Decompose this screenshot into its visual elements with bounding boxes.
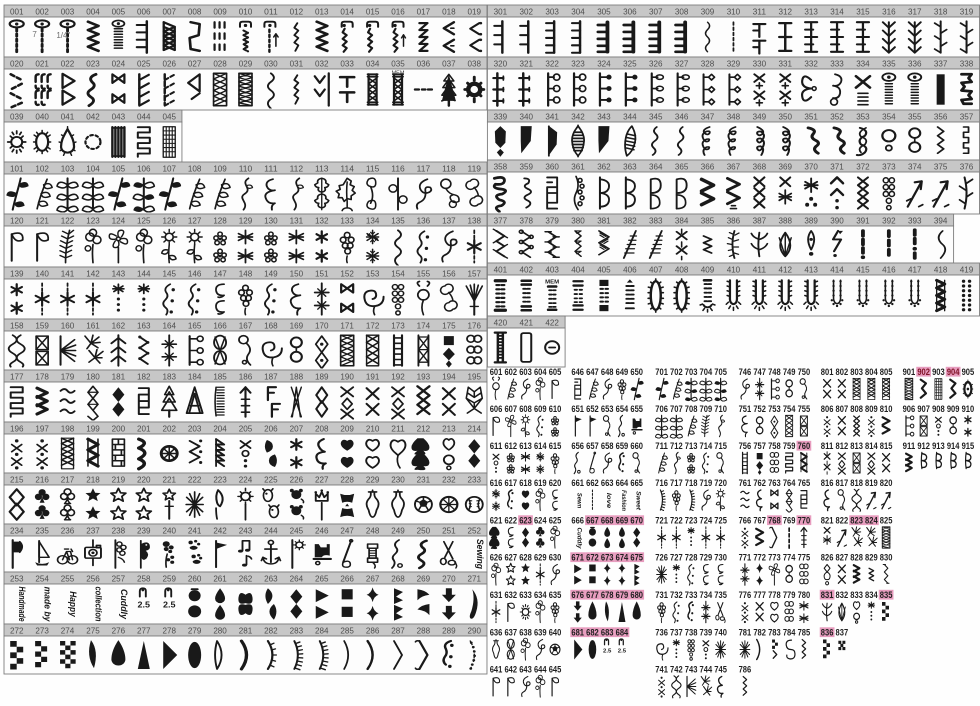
svg-text:256: 256 [86, 573, 100, 583]
svg-text:829: 829 [865, 553, 878, 563]
svg-text:038: 038 [468, 58, 482, 68]
svg-text:302: 302 [520, 6, 534, 16]
svg-text:366: 366 [701, 161, 715, 171]
svg-text:141: 141 [61, 268, 75, 278]
svg-text:027: 027 [188, 58, 202, 68]
svg-text:154: 154 [391, 268, 405, 278]
svg-text:773: 773 [768, 553, 781, 563]
svg-text:828: 828 [850, 553, 863, 563]
svg-text:019: 019 [468, 6, 482, 16]
svg-text:Sewn: Sewn [576, 493, 582, 509]
svg-text:420: 420 [494, 317, 508, 327]
svg-text:313: 313 [804, 6, 818, 16]
svg-text:741: 741 [655, 665, 668, 675]
svg-text:388: 388 [779, 215, 793, 225]
svg-text:755: 755 [798, 404, 811, 414]
svg-text:Sweet: Sweet [635, 491, 641, 511]
svg-text:231: 231 [417, 474, 431, 484]
svg-text:820: 820 [880, 478, 893, 488]
svg-text:031: 031 [290, 58, 304, 68]
svg-text:402: 402 [520, 264, 534, 274]
svg-text:724: 724 [700, 516, 713, 526]
svg-text:255: 255 [61, 573, 75, 583]
svg-text:Fashion: Fashion [620, 490, 626, 511]
svg-text:Handmade: Handmade [17, 587, 27, 622]
svg-text:328: 328 [701, 58, 715, 68]
svg-text:770: 770 [798, 516, 811, 526]
svg-text:020: 020 [10, 58, 24, 68]
svg-text:382: 382 [623, 215, 637, 225]
svg-text:712: 712 [670, 441, 683, 451]
svg-text:779: 779 [783, 590, 796, 600]
svg-text:614: 614 [534, 441, 547, 451]
svg-text:011: 011 [264, 6, 278, 16]
svg-text:222: 222 [188, 474, 202, 484]
svg-text:661: 661 [571, 478, 584, 488]
svg-text:043: 043 [112, 111, 126, 121]
svg-text:282: 282 [264, 625, 278, 635]
svg-text:212: 212 [417, 423, 431, 433]
svg-text:214: 214 [468, 423, 482, 433]
svg-text:224: 224 [239, 474, 253, 484]
svg-text:319: 319 [960, 6, 974, 16]
svg-text:266: 266 [340, 573, 354, 583]
svg-text:713: 713 [685, 441, 698, 451]
svg-text:128: 128 [213, 215, 227, 225]
svg-text:MEM: MEM [392, 71, 405, 77]
svg-text:168: 168 [264, 320, 278, 330]
svg-text:914: 914 [947, 441, 960, 451]
svg-text:219: 219 [112, 474, 126, 484]
svg-text:905: 905 [962, 367, 975, 377]
svg-text:129: 129 [239, 215, 253, 225]
svg-text:830: 830 [880, 553, 893, 563]
svg-text:678: 678 [601, 590, 614, 600]
svg-text:731: 731 [655, 590, 668, 600]
svg-text:607: 607 [504, 404, 517, 414]
svg-text:384: 384 [675, 215, 689, 225]
svg-text:822: 822 [836, 516, 849, 526]
svg-text:169: 169 [290, 320, 304, 330]
svg-text:622: 622 [504, 516, 517, 526]
svg-text:240: 240 [162, 525, 176, 535]
svg-text:114: 114 [340, 163, 354, 173]
svg-text:679: 679 [616, 590, 629, 600]
svg-text:418: 418 [934, 264, 948, 274]
svg-text:684: 684 [616, 628, 629, 638]
svg-text:118: 118 [442, 163, 456, 173]
svg-text:810: 810 [880, 404, 893, 414]
svg-text:727: 727 [670, 553, 683, 563]
svg-text:189: 189 [315, 371, 329, 381]
svg-text:378: 378 [520, 215, 534, 225]
svg-text:274: 274 [61, 625, 75, 635]
svg-text:147: 147 [213, 268, 227, 278]
svg-text:175: 175 [442, 320, 456, 330]
svg-text:125: 125 [137, 215, 151, 225]
svg-text:247: 247 [340, 525, 354, 535]
svg-text:677: 677 [586, 590, 599, 600]
svg-text:827: 827 [836, 553, 849, 563]
svg-text:185: 185 [213, 371, 227, 381]
svg-text:655: 655 [630, 404, 643, 414]
svg-text:324: 324 [597, 58, 611, 68]
svg-text:673: 673 [601, 553, 614, 563]
svg-text:772: 772 [753, 553, 766, 563]
svg-text:651: 651 [571, 404, 584, 414]
svg-text:391: 391 [856, 215, 870, 225]
svg-text:279: 279 [188, 625, 202, 635]
svg-text:824: 824 [865, 516, 878, 526]
svg-text:374: 374 [908, 161, 922, 171]
svg-text:227: 227 [315, 474, 329, 484]
svg-text:140: 140 [35, 268, 49, 278]
svg-text:379: 379 [545, 215, 559, 225]
svg-text:193: 193 [417, 371, 431, 381]
svg-text:235: 235 [35, 525, 49, 535]
svg-text:805: 805 [880, 367, 893, 377]
svg-text:393: 393 [908, 215, 922, 225]
svg-text:619: 619 [534, 478, 547, 488]
svg-text:199: 199 [86, 423, 100, 433]
svg-text:7: 7 [32, 30, 37, 39]
svg-text:341: 341 [545, 111, 559, 121]
svg-text:142: 142 [86, 268, 100, 278]
svg-text:740: 740 [714, 628, 727, 638]
svg-text:766: 766 [739, 516, 752, 526]
svg-text:910: 910 [962, 404, 975, 414]
svg-text:802: 802 [836, 367, 849, 377]
svg-text:350: 350 [779, 111, 793, 121]
svg-text:422: 422 [545, 317, 559, 327]
svg-text:618: 618 [519, 478, 532, 488]
svg-text:120: 120 [10, 215, 24, 225]
svg-text:410: 410 [727, 264, 741, 274]
svg-text:769: 769 [783, 516, 796, 526]
svg-text:301: 301 [494, 6, 508, 16]
svg-text:728: 728 [685, 553, 698, 563]
svg-text:325: 325 [623, 58, 637, 68]
svg-text:035: 035 [391, 58, 405, 68]
svg-text:764: 764 [783, 478, 796, 488]
svg-text:705: 705 [714, 367, 727, 377]
svg-text:024: 024 [112, 58, 126, 68]
svg-text:037: 037 [442, 58, 456, 68]
svg-text:287: 287 [391, 625, 405, 635]
svg-text:113: 113 [315, 163, 329, 173]
svg-text:403: 403 [545, 264, 559, 274]
svg-text:421: 421 [520, 317, 534, 327]
svg-text:708: 708 [685, 404, 698, 414]
svg-text:195: 195 [468, 371, 482, 381]
svg-text:777: 777 [753, 590, 766, 600]
svg-text:318: 318 [934, 6, 948, 16]
svg-text:604: 604 [534, 367, 547, 377]
svg-text:654: 654 [616, 404, 629, 414]
svg-text:334: 334 [856, 58, 870, 68]
svg-text:809: 809 [865, 404, 878, 414]
svg-text:150: 150 [290, 268, 304, 278]
svg-text:358: 358 [494, 161, 508, 171]
svg-text:806: 806 [821, 404, 834, 414]
svg-text:716: 716 [655, 478, 668, 488]
svg-text:204: 204 [213, 423, 227, 433]
svg-text:Cuddly: Cuddly [576, 528, 582, 550]
svg-text:207: 207 [290, 423, 304, 433]
svg-text:718: 718 [685, 478, 698, 488]
svg-text:308: 308 [675, 6, 689, 16]
svg-text:717: 717 [670, 478, 683, 488]
svg-text:633: 633 [519, 590, 532, 600]
svg-text:205: 205 [239, 423, 253, 433]
svg-text:152: 152 [340, 268, 354, 278]
svg-text:314: 314 [830, 6, 844, 16]
svg-text:179: 179 [61, 371, 75, 381]
svg-text:184: 184 [188, 371, 202, 381]
svg-text:025: 025 [137, 58, 151, 68]
svg-text:768: 768 [768, 516, 781, 526]
svg-text:813: 813 [850, 441, 863, 451]
svg-text:197: 197 [35, 423, 49, 433]
svg-text:258: 258 [137, 573, 151, 583]
svg-text:608: 608 [519, 404, 532, 414]
svg-text:416: 416 [882, 264, 896, 274]
svg-text:102: 102 [35, 163, 49, 173]
svg-text:161: 161 [86, 320, 100, 330]
svg-text:620: 620 [549, 478, 562, 488]
svg-text:013: 013 [315, 6, 329, 16]
svg-text:659: 659 [616, 441, 629, 451]
svg-text:105: 105 [112, 163, 126, 173]
svg-text:026: 026 [162, 58, 176, 68]
svg-text:634: 634 [534, 590, 547, 600]
svg-text:229: 229 [366, 474, 380, 484]
svg-text:915: 915 [962, 441, 975, 451]
svg-text:034: 034 [366, 58, 380, 68]
svg-text:380: 380 [571, 215, 585, 225]
svg-text:669: 669 [616, 516, 629, 526]
svg-text:242: 242 [213, 525, 227, 535]
svg-text:131: 131 [290, 215, 304, 225]
svg-text:261: 261 [213, 573, 227, 583]
svg-text:015: 015 [366, 6, 380, 16]
svg-text:106: 106 [137, 163, 151, 173]
svg-text:763: 763 [768, 478, 781, 488]
svg-text:668: 668 [601, 516, 614, 526]
svg-text:346: 346 [675, 111, 689, 121]
svg-text:411: 411 [753, 264, 767, 274]
svg-text:226: 226 [290, 474, 304, 484]
svg-text:367: 367 [727, 161, 741, 171]
svg-text:742: 742 [670, 665, 683, 675]
svg-text:681: 681 [571, 628, 584, 638]
svg-text:254: 254 [35, 573, 49, 583]
svg-text:044: 044 [137, 111, 151, 121]
svg-text:265: 265 [315, 573, 329, 583]
svg-text:632: 632 [504, 590, 517, 600]
svg-text:364: 364 [649, 161, 663, 171]
svg-text:355: 355 [908, 111, 922, 121]
svg-text:626: 626 [490, 553, 503, 563]
svg-text:743: 743 [685, 665, 698, 675]
svg-text:016: 016 [391, 6, 405, 16]
svg-text:111: 111 [264, 163, 278, 173]
svg-text:761: 761 [739, 478, 752, 488]
svg-text:211: 211 [391, 423, 405, 433]
svg-text:906: 906 [903, 404, 916, 414]
svg-text:180: 180 [86, 371, 100, 381]
svg-text:218: 218 [86, 474, 100, 484]
svg-text:332: 332 [804, 58, 818, 68]
svg-text:257: 257 [112, 573, 126, 583]
svg-text:749: 749 [783, 367, 796, 377]
svg-text:126: 126 [162, 215, 176, 225]
svg-text:014: 014 [340, 6, 354, 16]
svg-text:252: 252 [468, 525, 482, 535]
svg-text:753: 753 [768, 404, 781, 414]
svg-text:186: 186 [239, 371, 253, 381]
svg-text:018: 018 [442, 6, 456, 16]
svg-text:337: 337 [934, 58, 948, 68]
svg-text:138: 138 [468, 215, 482, 225]
svg-text:290: 290 [468, 625, 482, 635]
svg-text:375: 375 [934, 161, 948, 171]
svg-text:756: 756 [739, 441, 752, 451]
svg-text:127: 127 [188, 215, 202, 225]
svg-text:406: 406 [623, 264, 637, 274]
svg-text:909: 909 [947, 404, 960, 414]
svg-text:174: 174 [417, 320, 431, 330]
svg-text:709: 709 [700, 404, 713, 414]
svg-text:760: 760 [798, 441, 811, 451]
svg-text:365: 365 [675, 161, 689, 171]
svg-text:273: 273 [35, 625, 49, 635]
svg-text:116: 116 [391, 163, 405, 173]
svg-text:008: 008 [188, 6, 202, 16]
svg-text:191: 191 [366, 371, 380, 381]
svg-text:648: 648 [601, 367, 614, 377]
svg-text:617: 617 [504, 478, 517, 488]
svg-text:664: 664 [616, 478, 629, 488]
svg-text:624: 624 [534, 516, 547, 526]
svg-text:638: 638 [519, 628, 532, 638]
svg-text:010: 010 [239, 6, 253, 16]
svg-text:644: 644 [534, 665, 547, 675]
svg-text:165: 165 [188, 320, 202, 330]
svg-text:love: love [605, 493, 611, 509]
svg-text:171: 171 [340, 320, 354, 330]
svg-text:601: 601 [490, 367, 503, 377]
svg-text:228: 228 [340, 474, 354, 484]
svg-text:674: 674 [616, 553, 629, 563]
svg-text:163: 163 [137, 320, 151, 330]
svg-text:284: 284 [315, 625, 329, 635]
svg-text:323: 323 [571, 58, 585, 68]
svg-text:722: 722 [670, 516, 683, 526]
svg-text:383: 383 [649, 215, 663, 225]
svg-text:711: 711 [655, 441, 668, 451]
svg-text:203: 203 [188, 423, 202, 433]
svg-text:315: 315 [856, 6, 870, 16]
svg-text:765: 765 [798, 478, 811, 488]
svg-text:351: 351 [804, 111, 818, 121]
svg-text:803: 803 [850, 367, 863, 377]
svg-text:780: 780 [798, 590, 811, 600]
svg-text:133: 133 [340, 215, 354, 225]
svg-text:641: 641 [490, 665, 503, 675]
svg-text:005: 005 [112, 6, 126, 16]
svg-text:621: 621 [490, 516, 503, 526]
svg-text:408: 408 [675, 264, 689, 274]
svg-text:206: 206 [264, 423, 278, 433]
svg-text:670: 670 [630, 516, 643, 526]
svg-text:404: 404 [571, 264, 585, 274]
svg-text:303: 303 [545, 6, 559, 16]
svg-text:108: 108 [188, 163, 202, 173]
svg-text:281: 281 [239, 625, 253, 635]
svg-text:373: 373 [882, 161, 896, 171]
svg-text:146: 146 [188, 268, 202, 278]
svg-text:1/4": 1/4" [56, 31, 70, 40]
svg-text:767: 767 [753, 516, 766, 526]
svg-text:160: 160 [61, 320, 75, 330]
svg-text:121: 121 [35, 215, 49, 225]
svg-text:177: 177 [10, 371, 24, 381]
svg-text:045: 045 [162, 111, 176, 121]
svg-text:006: 006 [137, 6, 151, 16]
svg-text:134: 134 [366, 215, 380, 225]
svg-text:267: 267 [366, 573, 380, 583]
svg-text:215: 215 [10, 474, 24, 484]
svg-text:808: 808 [850, 404, 863, 414]
svg-text:671: 671 [571, 553, 584, 563]
svg-text:825: 825 [880, 516, 893, 526]
svg-text:036: 036 [417, 58, 431, 68]
svg-text:149: 149 [264, 268, 278, 278]
svg-text:729: 729 [700, 553, 713, 563]
svg-text:738: 738 [685, 628, 698, 638]
svg-text:702: 702 [670, 367, 683, 377]
svg-text:347: 347 [701, 111, 715, 121]
svg-text:631: 631 [490, 590, 503, 600]
svg-text:221: 221 [162, 474, 176, 484]
svg-text:137: 137 [442, 215, 456, 225]
svg-text:752: 752 [753, 404, 766, 414]
svg-text:132: 132 [315, 215, 329, 225]
svg-text:237: 237 [86, 525, 100, 535]
svg-text:818: 818 [850, 478, 863, 488]
svg-text:901: 901 [903, 367, 916, 377]
svg-text:732: 732 [670, 590, 683, 600]
svg-text:124: 124 [112, 215, 126, 225]
svg-text:904: 904 [947, 367, 960, 377]
svg-text:815: 815 [880, 441, 893, 451]
svg-text:352: 352 [830, 111, 844, 121]
svg-text:275: 275 [86, 625, 100, 635]
svg-text:665: 665 [630, 478, 643, 488]
svg-text:110: 110 [239, 163, 253, 173]
svg-text:253: 253 [10, 573, 24, 583]
svg-text:369: 369 [779, 161, 793, 171]
svg-text:209: 209 [340, 423, 354, 433]
svg-text:306: 306 [623, 6, 637, 16]
svg-text:415: 415 [856, 264, 870, 274]
svg-text:170: 170 [315, 320, 329, 330]
svg-text:615: 615 [549, 441, 562, 451]
svg-text:819: 819 [865, 478, 878, 488]
svg-text:104: 104 [86, 163, 100, 173]
svg-text:245: 245 [290, 525, 304, 535]
